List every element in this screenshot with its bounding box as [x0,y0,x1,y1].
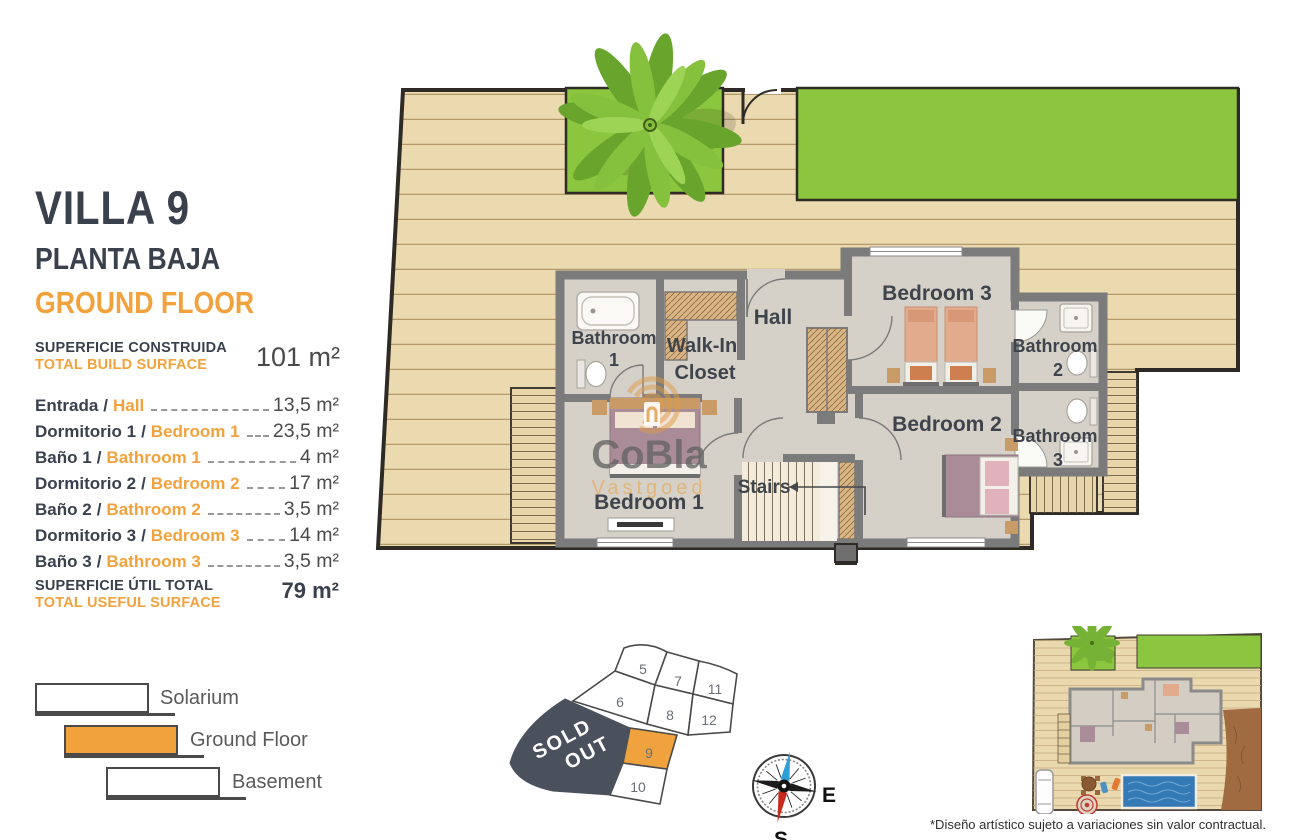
deck-steps-left [511,388,560,543]
room-name-es: Baño 2 [35,500,92,520]
floor-legend: Solarium Ground Floor Basement [35,683,355,813]
staircase [742,462,865,541]
label-walkin-line2: Closet [674,362,735,384]
room-name-en: Bathroom 2 [106,500,200,520]
room-name-es: Baño 3 [35,552,92,572]
label-bathroom3-line2: 3 [1053,450,1063,470]
bottom-wall-tab [835,544,857,562]
hall-wardrobe [807,328,847,424]
build-surface-label-es: SUPERFICIE CONSTRUIDA [35,340,256,357]
separator: / [141,526,146,546]
room-row-bathroom2: Baño 2/Bathroom 2 3,5 m² [35,498,339,524]
shower-bathroom2 [1060,304,1092,332]
dashed-leader [151,409,269,411]
room-name-es: Dormitorio 2 [35,474,136,494]
site-overview-thumbnail [1025,626,1265,814]
mini-car [1036,770,1053,814]
separator: / [141,422,146,442]
room-name-es: Entrada [35,396,98,416]
plot-number-11: 11 [708,681,723,697]
label-bathroom1-line2: 1 [609,350,619,370]
label-bedroom1: Bedroom 1 [594,491,704,514]
room-area-value: 23,5 m² [273,420,339,443]
legend-line [35,713,175,716]
room-name-en: Bedroom 2 [151,474,240,494]
label-bathroom2-line2: 2 [1053,360,1063,380]
room-row-bedroom2: Dormitorio 2/Bedroom 2 17 m² [35,472,339,498]
legend-box-basement [106,767,220,797]
mini-grass-right [1137,635,1261,668]
villa-title: VILLA 9 [35,180,190,235]
legend-line [64,755,204,758]
room-row-bedroom3: Dormitorio 3/Bedroom 3 14 m² [35,524,339,550]
grass-patch-right [797,88,1238,200]
legend-box-solarium [35,683,149,713]
room-area-value: 17 m² [289,472,339,495]
deck-steps-bottom [1030,475,1097,513]
room-area-list: Entrada/Hall 13,5 m² Dormitorio 1/Bedroo… [35,394,339,576]
separator: / [97,448,102,468]
plot-number-5: 5 [639,661,647,677]
room-area-value: 13,5 m² [273,394,339,417]
deck-steps-right [1103,372,1137,513]
separator: / [103,396,108,416]
compass-label-south: S [774,828,788,840]
room-area-value: 3,5 m² [284,550,339,573]
dashed-leader [208,565,280,567]
bathtub [577,292,639,330]
label-stairs: Stairs [738,477,791,498]
dashed-leader [208,513,280,515]
legend-label-ground-floor: Ground Floor [190,729,308,752]
separator: / [97,500,102,520]
useful-surface-label-en: TOTAL USEFUL SURFACE [35,595,282,612]
plot-number-7: 7 [674,673,682,689]
artistic-design-disclaimer: *Diseño artístico sujeto a variaciones s… [900,817,1266,832]
room-name-en: Hall [113,396,144,416]
plot-number-9: 9 [645,745,653,761]
build-surface-label-en: TOTAL BUILD SURFACE [35,357,256,374]
room-area-value: 14 m² [289,524,339,547]
room-row-bathroom3: Baño 3/Bathroom 3 3,5 m² [35,550,339,576]
useful-surface-value: 79 m² [282,578,339,604]
label-bathroom1-line1: Bathroom [572,328,657,348]
label-bathroom3-line1: Bathroom [1013,426,1098,446]
compass-rose: E S [718,736,858,840]
room-name-en: Bathroom 1 [106,448,200,468]
floor-title-es: PLANTA BAJA [35,241,220,277]
dashed-leader [247,487,286,489]
label-hall: Hall [754,306,793,329]
room-row-bathroom1: Baño 1/Bathroom 1 4 m² [35,446,339,472]
floor-title-en: GROUND FLOOR [35,285,254,321]
room-row-bedroom1: Dormitorio 1/Bedroom 1 23,5 m² [35,420,339,446]
room-name-en: Bedroom 3 [151,526,240,546]
room-name-es: Baño 1 [35,448,92,468]
label-bedroom3: Bedroom 3 [882,282,992,305]
dashed-leader [247,435,269,437]
dashed-leader [247,539,286,541]
plot-number-8: 8 [666,707,674,723]
room-name-en: Bedroom 1 [151,422,240,442]
build-surface-block: SUPERFICIE CONSTRUIDA TOTAL BUILD SURFAC… [35,340,340,373]
watermark-text-1: CoBla [591,433,707,477]
legend-label-basement: Basement [232,771,322,794]
room-area-value: 3,5 m² [284,498,339,521]
plot-number-12: 12 [701,712,717,728]
plot-number-10: 10 [630,779,646,795]
legend-label-solarium: Solarium [160,687,239,710]
useful-surface-block: SUPERFICIE ÚTIL TOTAL TOTAL USEFUL SURFA… [35,578,339,611]
separator: / [141,474,146,494]
mini-round-rug [1077,795,1097,814]
label-walkin-line1: Walk-In [667,335,737,357]
room-row-hall: Entrada/Hall 13,5 m² [35,394,339,420]
mini-deck-steps [1058,714,1070,763]
label-bedroom2: Bedroom 2 [892,413,1002,436]
toilet-bathroom3 [1067,398,1097,425]
build-surface-value: 101 m² [256,342,340,373]
floor-plan: CoBla Vastgoed Bathroom 1 Walk-In Closet… [365,20,1250,565]
useful-surface-label-es: SUPERFICIE ÚTIL TOTAL [35,578,282,595]
room-name-es: Dormitorio 3 [35,526,136,546]
room-name-en: Bathroom 3 [106,552,200,572]
mini-dirt-area [1221,708,1261,810]
dashed-leader [208,461,296,463]
compass-label-east: E [822,784,836,807]
mini-pool [1122,775,1196,808]
toilet-bathroom1 [577,360,606,388]
room-name-es: Dormitorio 1 [35,422,136,442]
room-area-value: 4 m² [300,446,339,469]
plot-number-6: 6 [616,694,624,710]
label-bathroom2-line1: Bathroom [1013,336,1098,356]
legend-line [106,797,246,800]
legend-box-ground-floor [64,725,178,755]
separator: / [97,552,102,572]
